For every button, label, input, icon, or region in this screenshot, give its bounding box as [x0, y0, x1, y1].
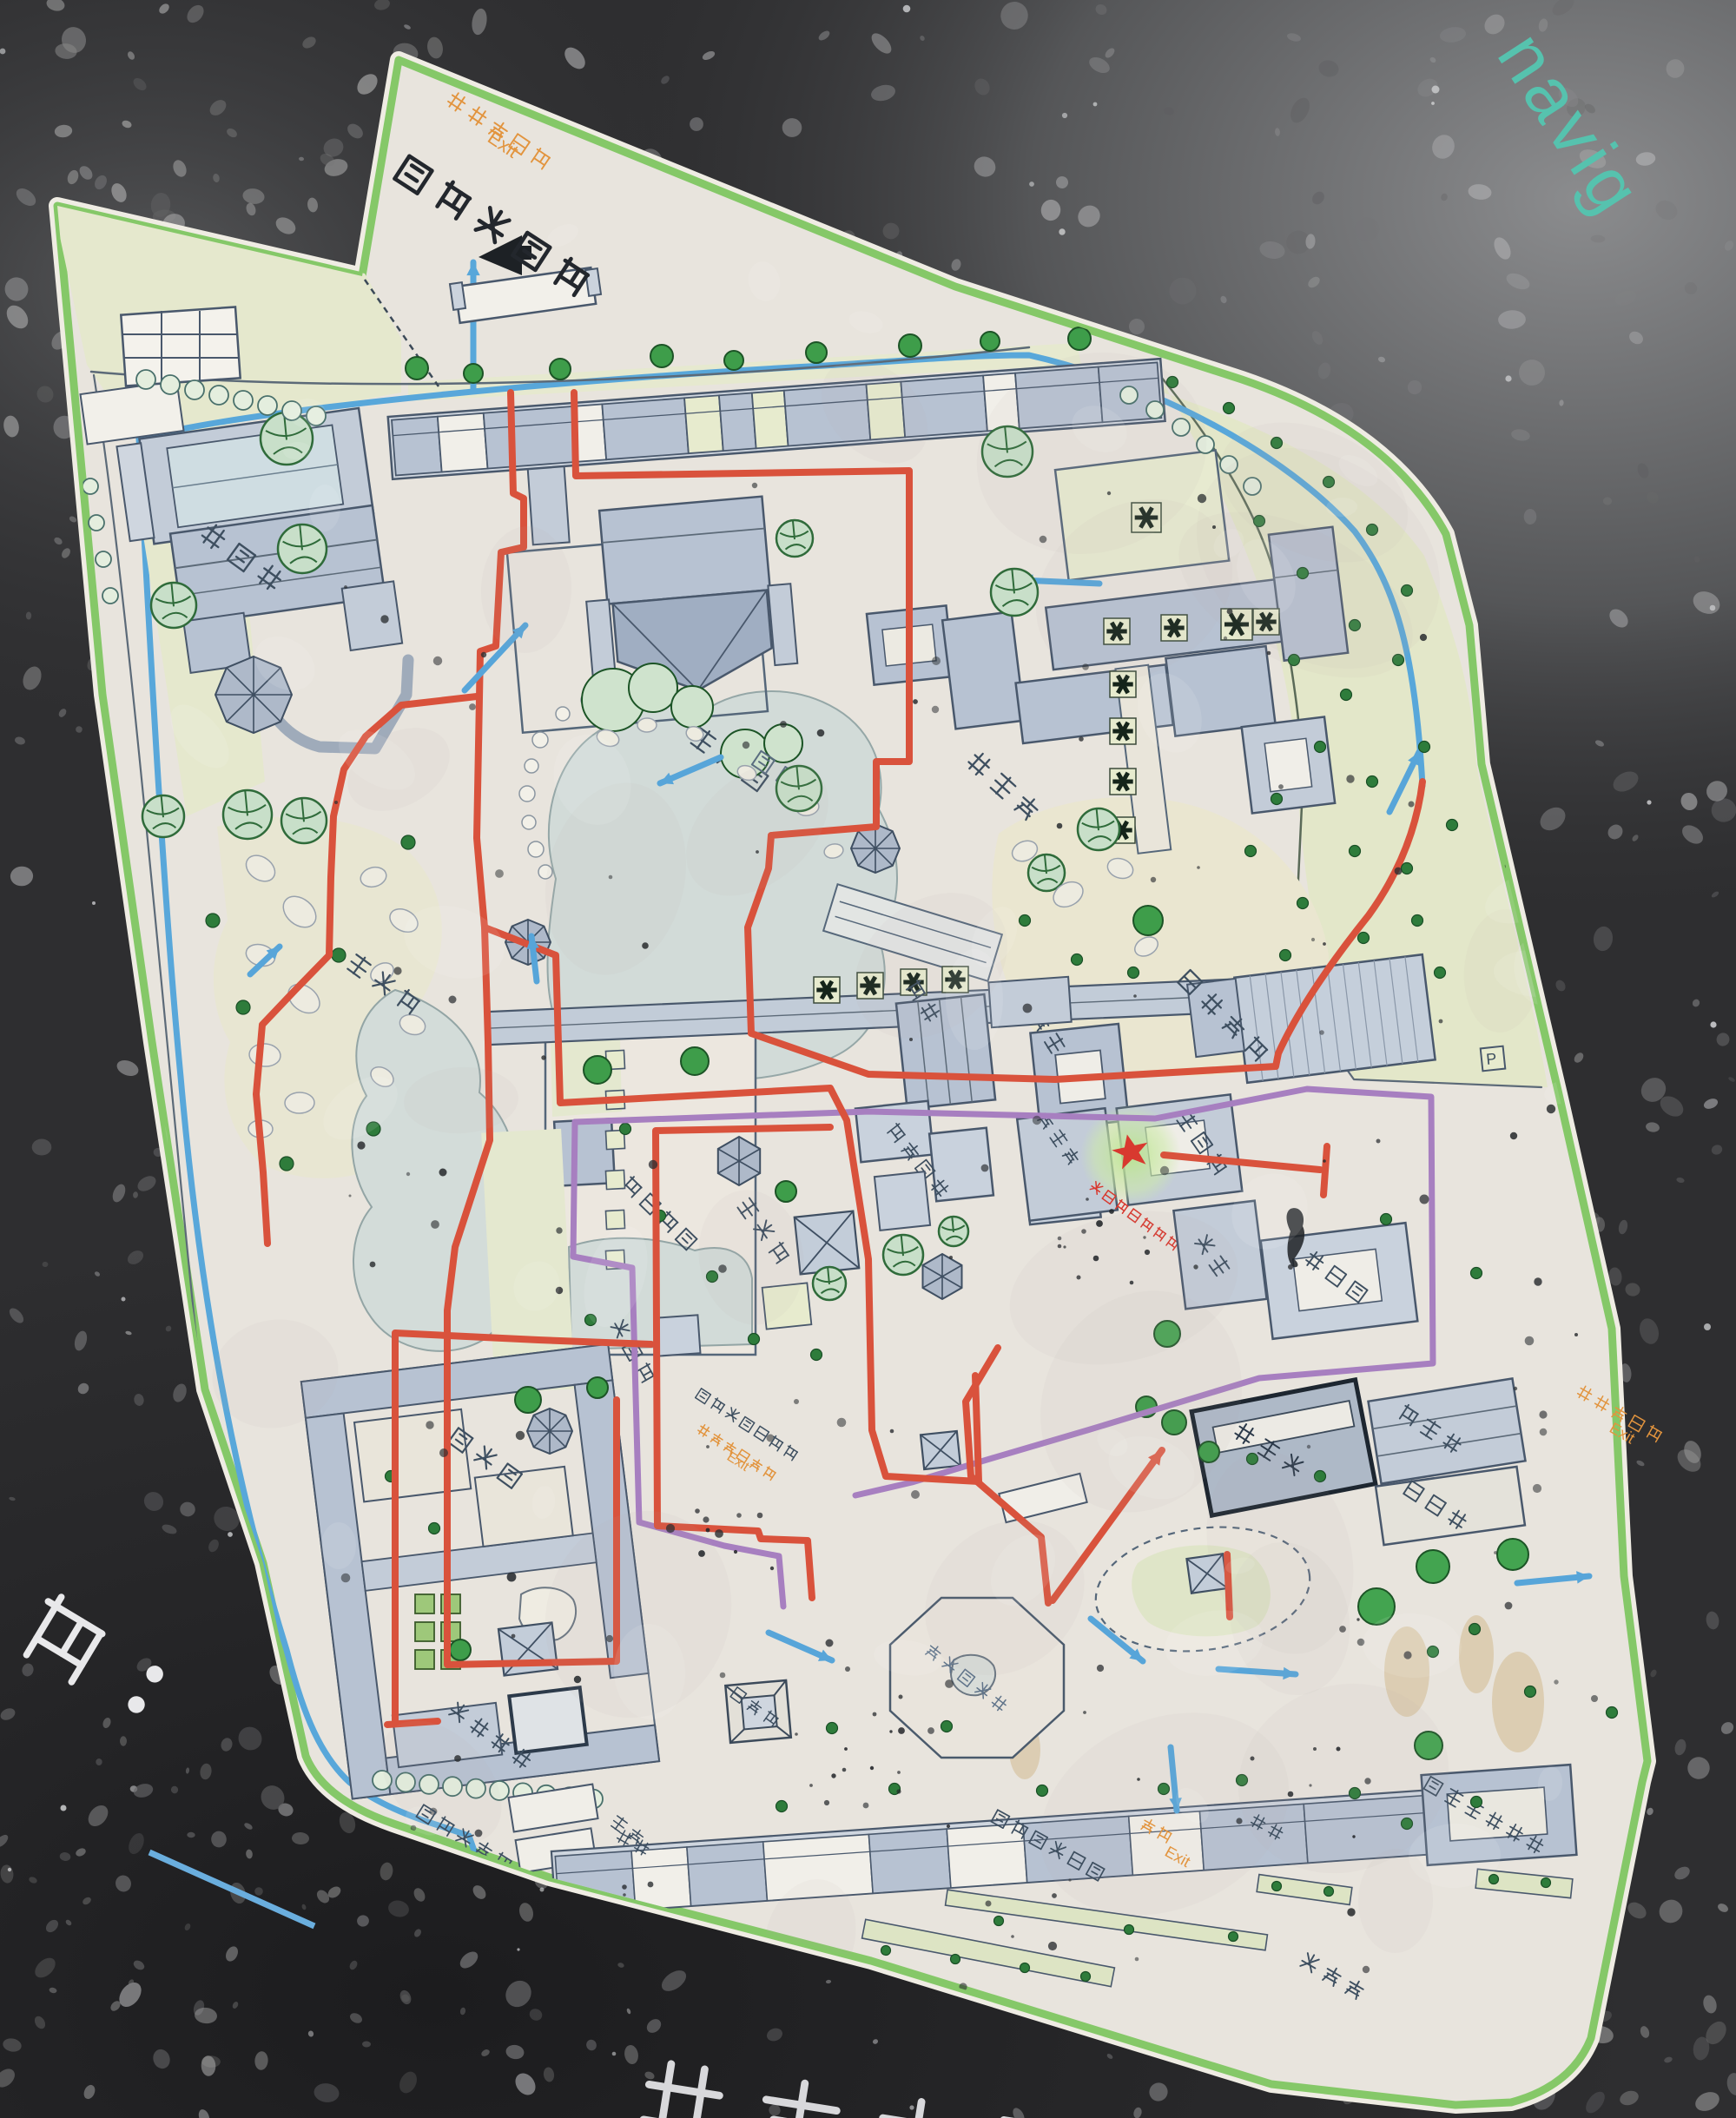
svg-text:P: P [1485, 1050, 1497, 1068]
